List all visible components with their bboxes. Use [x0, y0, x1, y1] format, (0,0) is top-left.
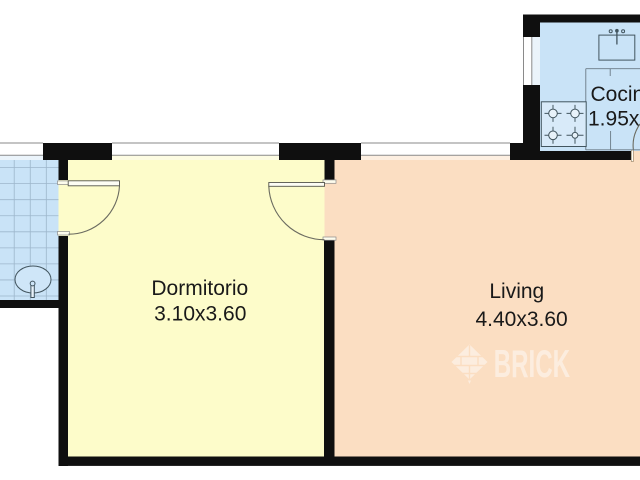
svg-text:1.95x1.90: 1.95x1.90	[588, 108, 640, 131]
svg-text:4.40x3.60: 4.40x3.60	[475, 308, 567, 331]
svg-text:BRICK: BRICK	[494, 343, 570, 386]
svg-text:Dormitorio: Dormitorio	[151, 277, 248, 300]
svg-text:Cocina: Cocina	[591, 83, 640, 106]
svg-text:Living: Living	[489, 280, 544, 303]
svg-text:3.10x3.60: 3.10x3.60	[154, 302, 246, 325]
